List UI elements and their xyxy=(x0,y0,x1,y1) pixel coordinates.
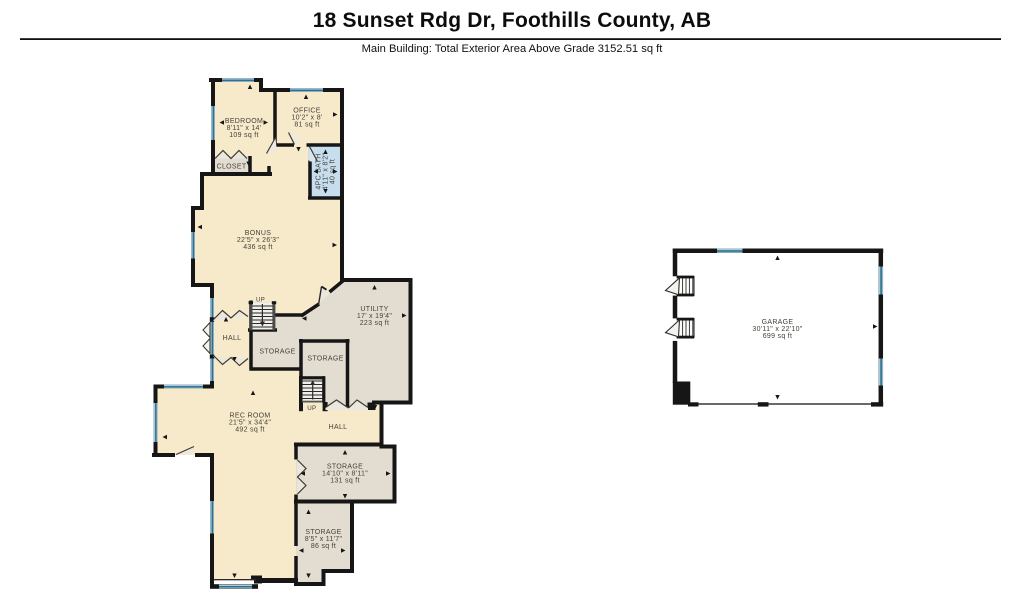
svg-text:492 sq ft: 492 sq ft xyxy=(235,427,265,434)
svg-text:436 sq ft: 436 sq ft xyxy=(243,244,273,251)
svg-text:699 sq ft: 699 sq ft xyxy=(763,333,793,340)
svg-text:131 sq ft: 131 sq ft xyxy=(330,478,360,485)
svg-text:Main Building: Total Exterior: Main Building: Total Exterior Area Above… xyxy=(362,43,664,55)
svg-text:30'11" x 22'10": 30'11" x 22'10" xyxy=(752,326,802,333)
svg-text:UP: UP xyxy=(307,405,316,412)
svg-text:STORAGE: STORAGE xyxy=(307,356,343,363)
svg-text:STORAGE: STORAGE xyxy=(327,464,363,471)
svg-text:223 sq ft: 223 sq ft xyxy=(360,320,390,327)
svg-text:86 sq ft: 86 sq ft xyxy=(311,543,336,550)
svg-text:109 sq ft: 109 sq ft xyxy=(229,132,259,139)
svg-text:STORAGE: STORAGE xyxy=(305,529,341,536)
svg-text:UP: UP xyxy=(256,296,265,303)
svg-text:14'10" x 8'11": 14'10" x 8'11" xyxy=(322,471,368,478)
svg-text:22'5" x 26'3": 22'5" x 26'3" xyxy=(237,237,280,244)
svg-text:BONUS: BONUS xyxy=(245,230,271,237)
svg-text:17' x 19'4": 17' x 19'4" xyxy=(357,313,393,320)
svg-text:4'11" x 8'2": 4'11" x 8'2" xyxy=(323,152,330,190)
svg-text:18 Sunset Rdg Dr, Foothills Co: 18 Sunset Rdg Dr, Foothills County, AB xyxy=(313,9,711,32)
svg-text:HALL: HALL xyxy=(223,335,242,342)
svg-text:BEDROOM: BEDROOM xyxy=(225,118,263,125)
svg-text:HALL: HALL xyxy=(329,424,348,431)
svg-text:STORAGE: STORAGE xyxy=(259,349,295,356)
svg-text:8'11" x 14': 8'11" x 14' xyxy=(227,125,262,132)
svg-text:UTILITY: UTILITY xyxy=(360,306,388,313)
svg-text:21'5" x 34'4": 21'5" x 34'4" xyxy=(229,420,272,427)
svg-text:8'5" x 11'7": 8'5" x 11'7" xyxy=(305,536,343,543)
svg-text:OFFICE: OFFICE xyxy=(293,108,320,115)
svg-text:REC ROOM: REC ROOM xyxy=(230,413,271,420)
svg-text:CLOSET: CLOSET xyxy=(217,164,247,171)
svg-text:10'2" x 8': 10'2" x 8' xyxy=(291,115,322,122)
svg-text:GARAGE: GARAGE xyxy=(762,319,794,326)
svg-text:81 sq ft: 81 sq ft xyxy=(294,122,319,129)
